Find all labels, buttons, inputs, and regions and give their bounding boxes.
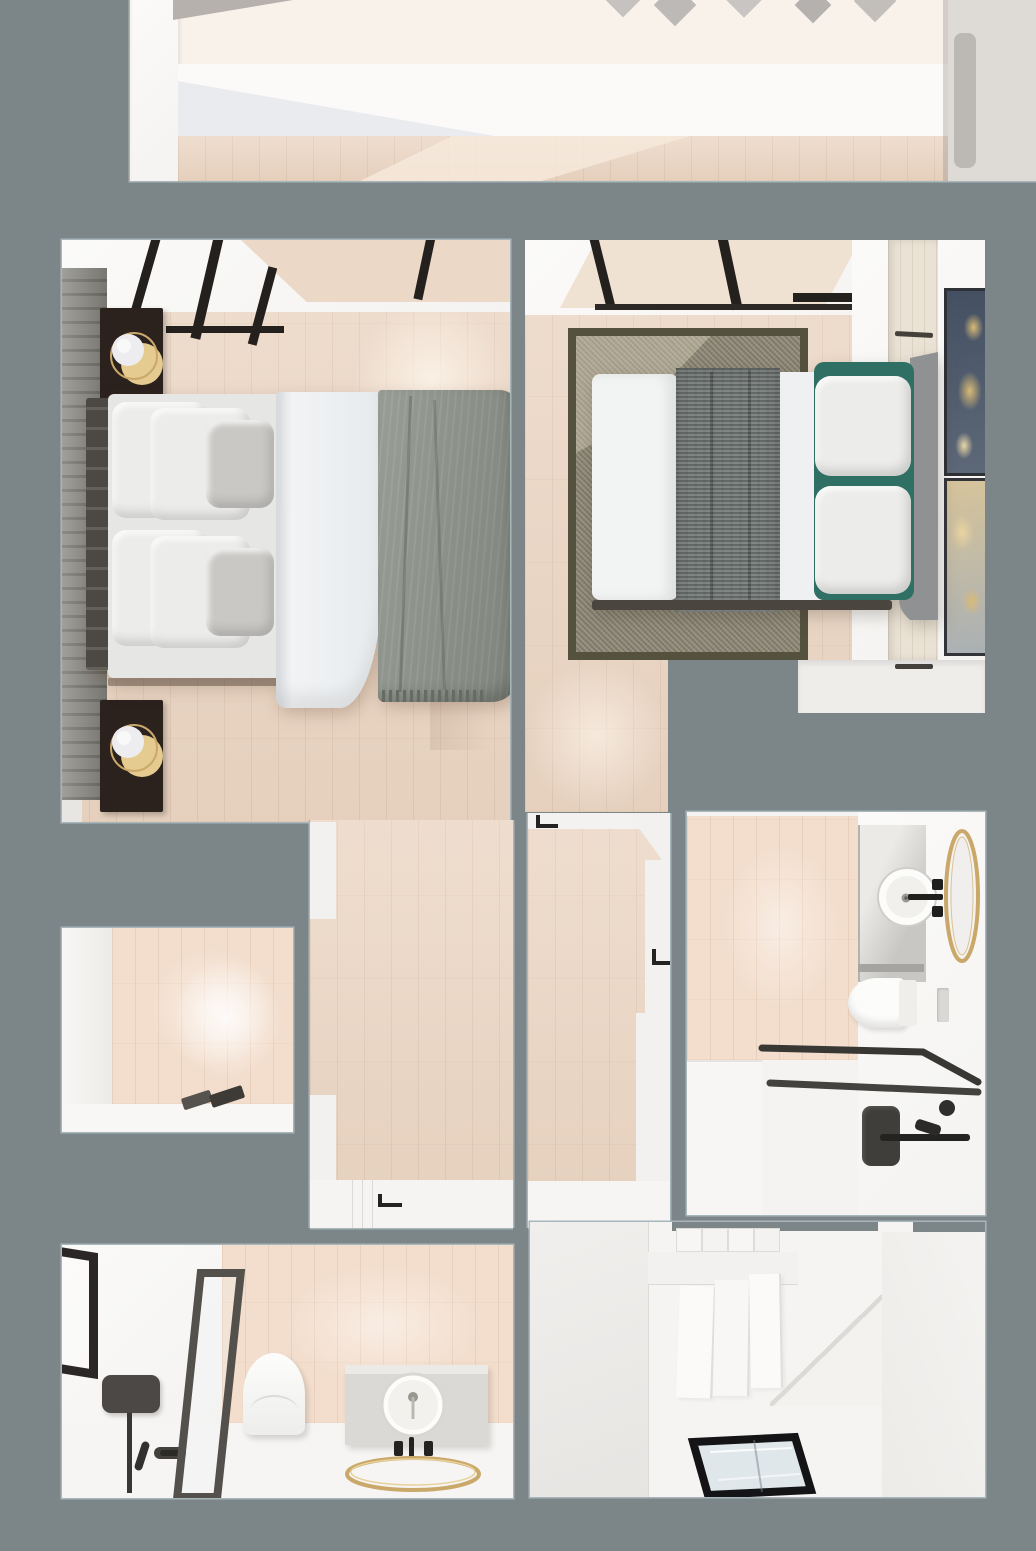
blanket-fringe xyxy=(382,690,486,702)
art-shape xyxy=(724,0,764,18)
black-shower-head-panel xyxy=(102,1375,160,1413)
sunlight-patch xyxy=(525,660,668,812)
hallway-center xyxy=(528,813,670,1228)
table-lamp-top xyxy=(104,326,168,390)
shower-valve xyxy=(939,1100,955,1116)
grab-bar xyxy=(880,1134,970,1141)
alcove-shadow-blob xyxy=(954,33,976,168)
room-bedroom-right xyxy=(525,240,985,812)
bed-mattress xyxy=(592,374,678,600)
ceiling-shadow-wedge xyxy=(173,0,293,20)
partition-sill xyxy=(166,326,284,333)
toilet-seat-line xyxy=(250,1395,298,1427)
table-lamp-bottom xyxy=(104,718,168,782)
glass-floor-hatch xyxy=(530,1222,985,1497)
threshold-line xyxy=(372,1180,373,1228)
bed-foot-frame xyxy=(592,600,892,610)
left-wall-band xyxy=(62,928,112,1132)
skylight-sill xyxy=(793,293,855,302)
bathroom-bottom xyxy=(62,1245,513,1498)
pillow xyxy=(815,486,911,594)
alcove-seam-shadow xyxy=(943,0,948,181)
corridor-wall-band xyxy=(310,822,336,919)
art-frame-sand xyxy=(944,478,985,656)
threshold-line xyxy=(362,1180,363,1228)
art-shape xyxy=(854,0,896,22)
cushion-gray xyxy=(206,548,274,636)
door-handle-top xyxy=(536,815,558,828)
corridor-bottom-landing xyxy=(310,1180,513,1228)
glass-shower-frame xyxy=(687,812,985,1215)
right-wall-lower xyxy=(636,1013,670,1205)
skylight-frame-bottom xyxy=(595,304,857,310)
runner-fold xyxy=(710,372,713,608)
room-bedroom-left xyxy=(62,240,510,822)
cushion-gray xyxy=(206,420,274,508)
floor-strip xyxy=(62,1104,293,1132)
runner-fold xyxy=(748,370,751,608)
room-top-hall xyxy=(130,0,1036,181)
small-room-left xyxy=(62,928,293,1132)
wall-glow xyxy=(172,958,282,1078)
art-frame-navy xyxy=(944,288,985,476)
pillow xyxy=(815,376,911,476)
bed-foot-edge xyxy=(108,678,294,686)
gold-ring-mirror xyxy=(343,1455,483,1493)
hand-shower xyxy=(134,1440,151,1471)
hallway-bottom-landing xyxy=(528,1181,670,1228)
cabinet-lower xyxy=(798,660,985,713)
wall-baseboard xyxy=(62,800,82,822)
textured-runner-blanket xyxy=(676,368,780,612)
door-handle xyxy=(378,1194,402,1207)
art-shape xyxy=(605,0,642,17)
art-shape xyxy=(654,0,696,26)
round-basin xyxy=(379,1371,447,1439)
corridor-left xyxy=(310,820,513,1228)
threshold-line xyxy=(352,1180,353,1228)
wall-left-column xyxy=(132,0,178,181)
black-framed-window xyxy=(62,1245,98,1379)
stair-room xyxy=(530,1222,985,1497)
black-tap xyxy=(424,1441,433,1456)
shower-pipe xyxy=(127,1413,132,1493)
wardrobe-handle xyxy=(895,664,933,669)
floorplan-canvas xyxy=(0,0,1036,1551)
bathroom-right xyxy=(687,812,985,1215)
wall-art-shapes xyxy=(600,0,920,28)
door-handle-right xyxy=(652,949,670,965)
art-shape xyxy=(795,0,832,23)
white-duvet xyxy=(276,392,382,708)
double-bed-horizontal xyxy=(590,368,938,636)
double-bed-vertical xyxy=(86,390,432,712)
black-tap xyxy=(394,1441,403,1456)
